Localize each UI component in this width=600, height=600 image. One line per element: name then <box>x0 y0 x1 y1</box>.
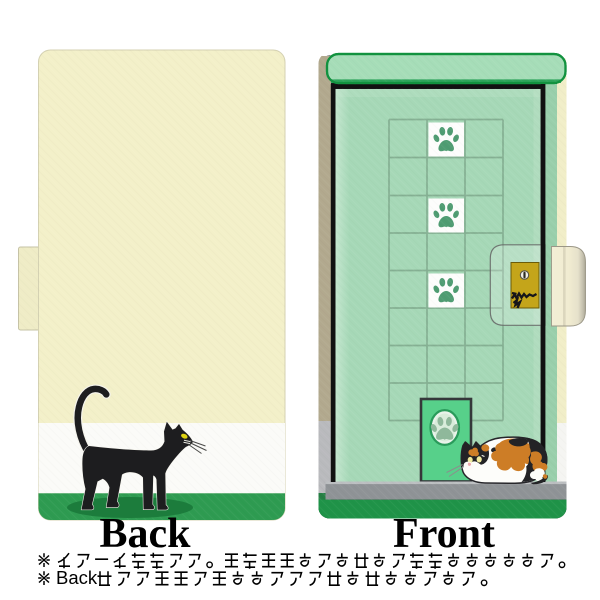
svg-text:Back: Back <box>99 511 191 557</box>
svg-text:Back: Back <box>56 567 98 588</box>
svg-text:Front: Front <box>393 511 495 557</box>
